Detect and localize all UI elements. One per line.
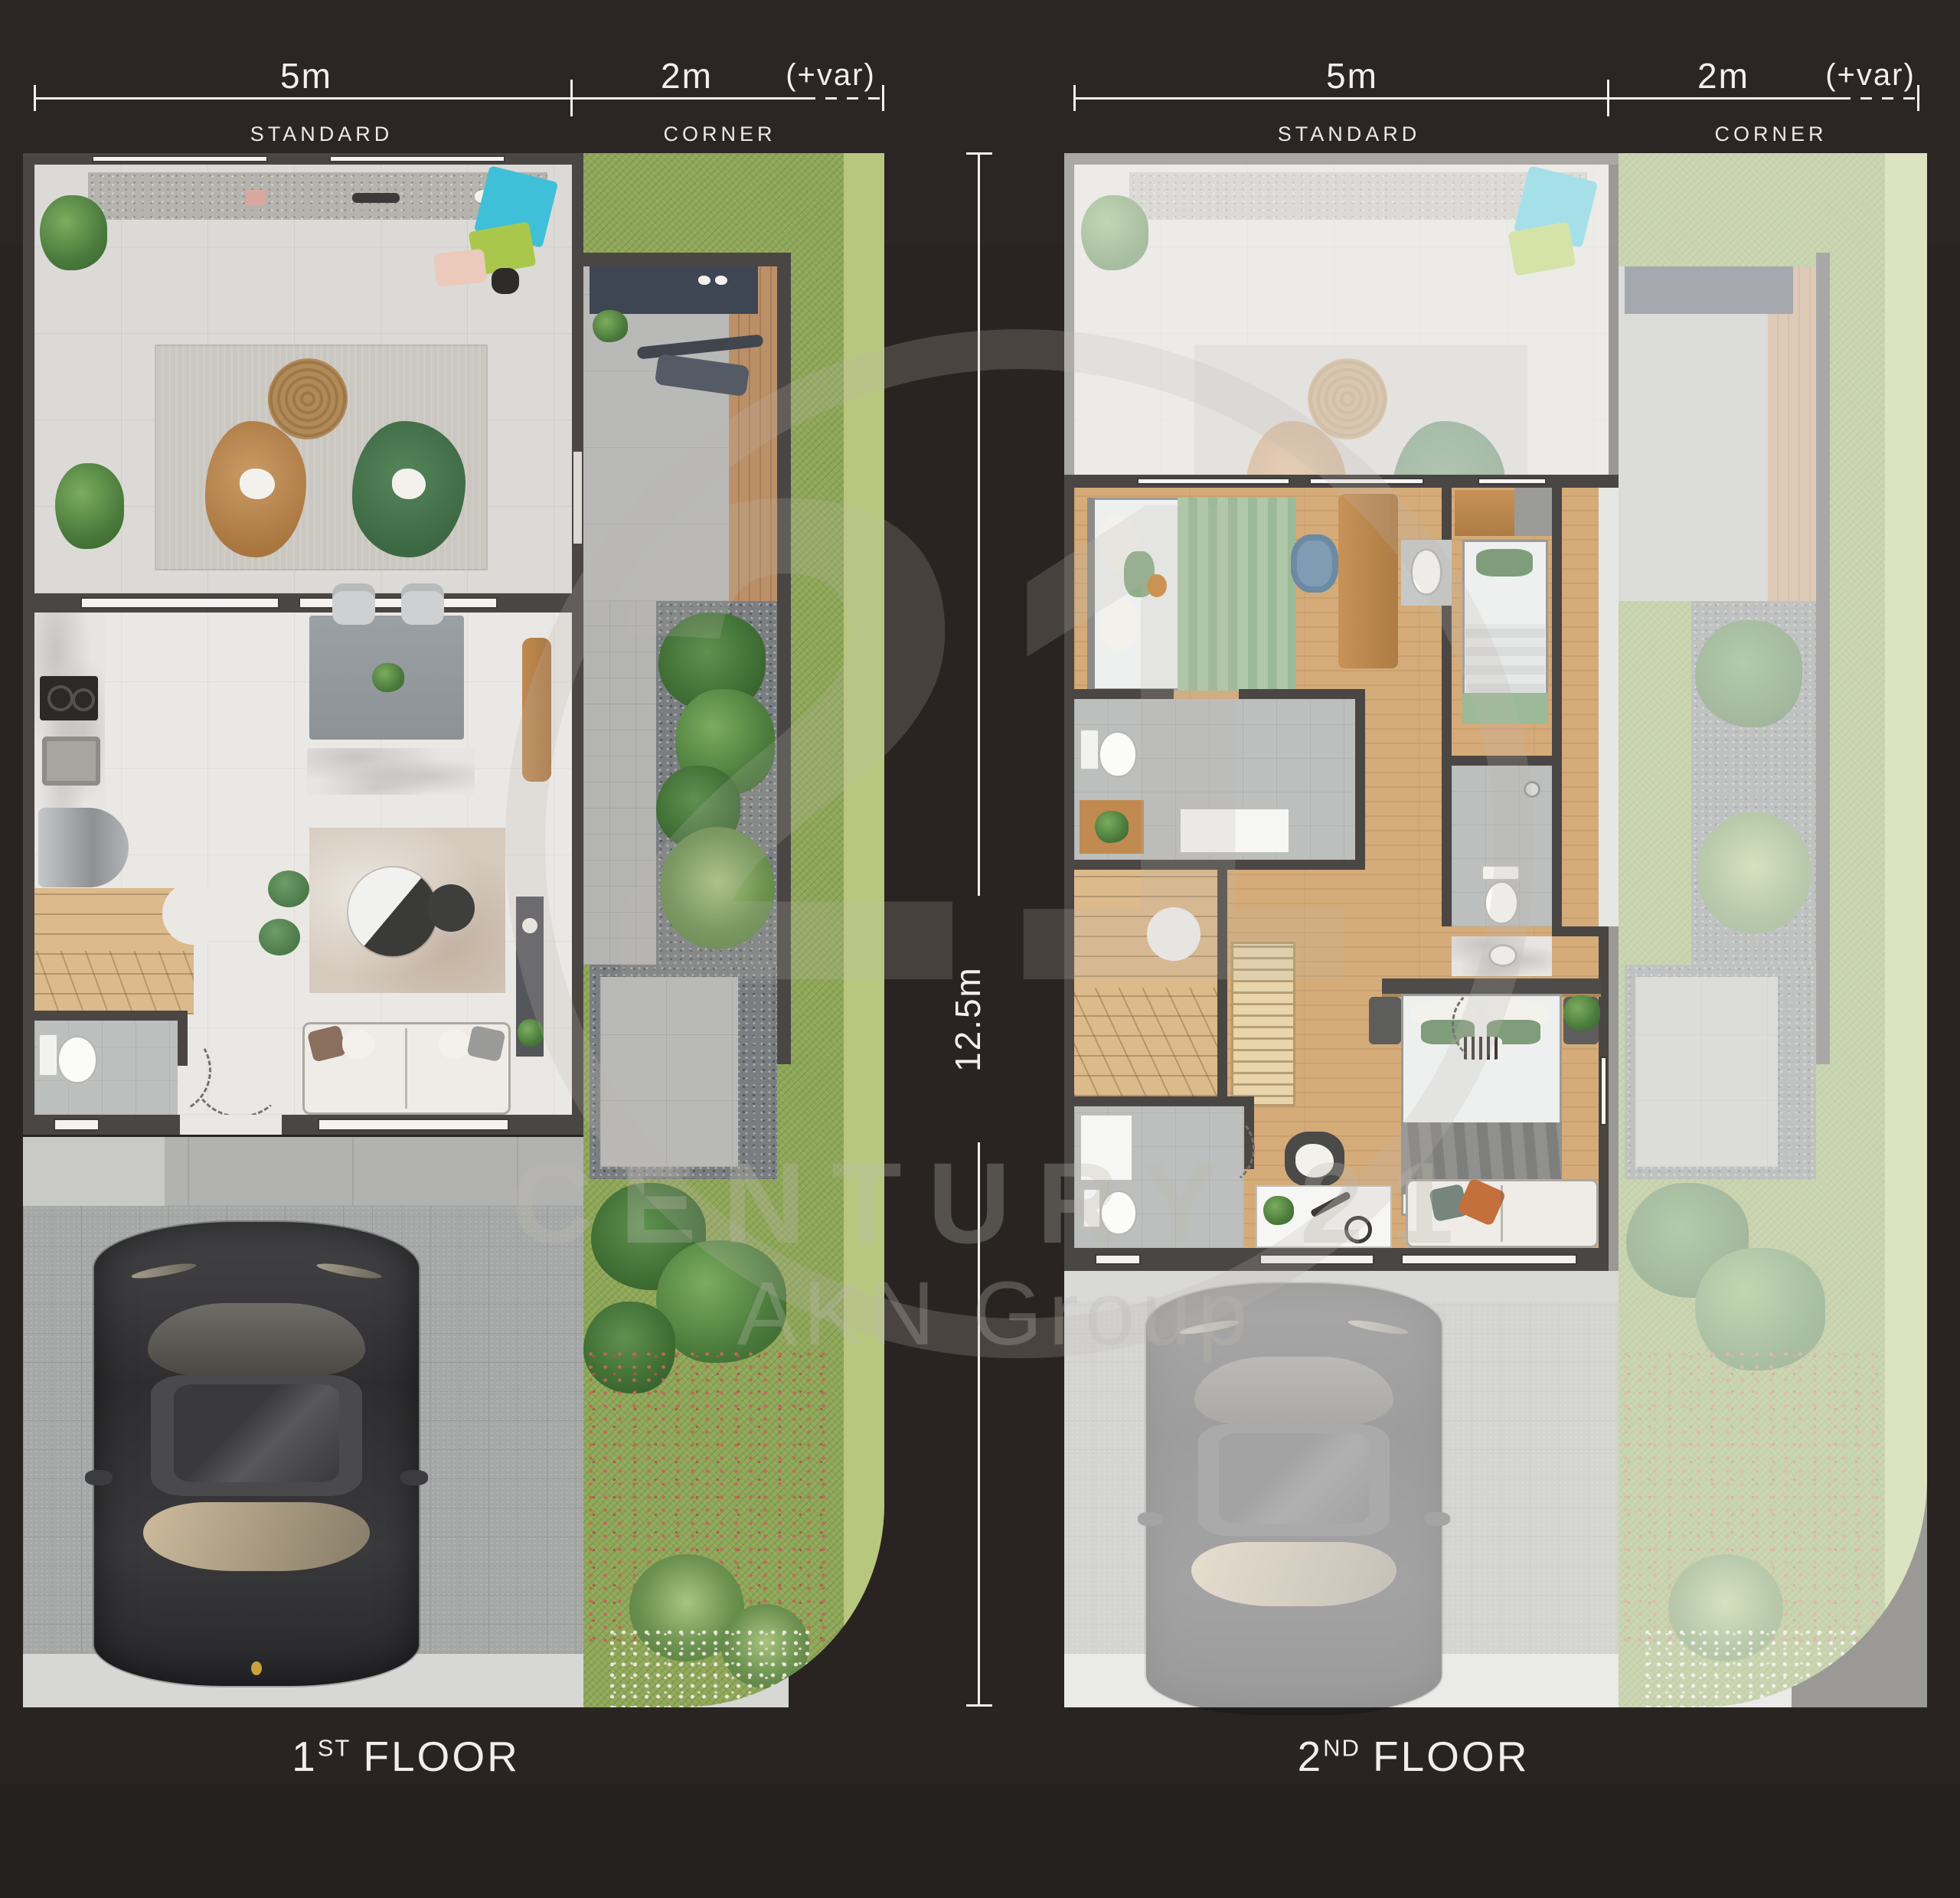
- right-dim-corner: 2m: [1647, 55, 1800, 96]
- sliding-door: [80, 597, 279, 609]
- bedroom1-desk: [1338, 494, 1398, 668]
- palm-plant: [660, 827, 775, 949]
- bed-footer-green: [1462, 693, 1548, 724]
- floor-number: 1: [292, 1733, 318, 1780]
- dim-tick: [1073, 85, 1076, 111]
- bean-pillow: [240, 469, 275, 499]
- stairs-wall: [1217, 870, 1227, 1096]
- dim-tick: [882, 85, 884, 111]
- dim-tick: [34, 85, 36, 111]
- toilet: [1484, 880, 1519, 925]
- entry-threshold: [180, 1115, 282, 1135]
- cushion-dark: [492, 268, 519, 294]
- bed-pillow: [1098, 594, 1142, 652]
- sofa-seam: [405, 1028, 407, 1109]
- potted-plant: [593, 310, 628, 342]
- sofa: [302, 1022, 511, 1115]
- car-rear-window: [143, 1502, 370, 1571]
- 2f-stairs-winder: [1074, 988, 1217, 1096]
- bedroom1-wall: [1074, 689, 1174, 699]
- terrace-side-door: [573, 452, 582, 544]
- shelf-plant: [1095, 811, 1129, 843]
- desk-chair-blue: [1291, 534, 1338, 593]
- floor-ordinal: ND: [1323, 1735, 1361, 1762]
- toilet: [57, 1035, 98, 1084]
- vertical-dimension-label: 12.5m: [947, 902, 1011, 1136]
- office-chair-seat: [1295, 1144, 1334, 1178]
- bathroom1-wall: [1355, 699, 1365, 870]
- sofa-pillow: [342, 1030, 374, 1059]
- first-floor-label: 1STFLOOR: [214, 1732, 597, 1781]
- side-wall: [777, 253, 791, 1064]
- window: [329, 155, 505, 162]
- stairs-newel: [1147, 907, 1200, 961]
- gravel-item: [352, 193, 400, 203]
- office-chair: [1285, 1132, 1344, 1187]
- side-table: [427, 884, 475, 932]
- bedroom2-desk: [1455, 490, 1514, 536]
- right-dim-dashes: [1839, 97, 1919, 100]
- nightstand-plant: [1563, 995, 1600, 1031]
- daybed: [1406, 1179, 1599, 1248]
- coffee-table: [348, 867, 437, 956]
- bathroom2-wall: [1074, 1096, 1254, 1106]
- bed-headboard: [1087, 498, 1095, 691]
- window: [318, 1119, 509, 1131]
- console-plant: [518, 1019, 544, 1047]
- floor-ordinal: ST: [318, 1735, 351, 1762]
- cushion-pink: [433, 249, 487, 288]
- bottom-wall: [23, 1115, 180, 1135]
- car: [88, 1217, 425, 1692]
- burner: [72, 688, 95, 711]
- teddy: [1147, 574, 1167, 597]
- sofa-pillow-brown: [307, 1024, 347, 1062]
- walkway-slab: [600, 977, 738, 1167]
- vdim-line-bottom: [978, 1142, 980, 1706]
- desk-laptop: [1310, 1191, 1351, 1217]
- side-yard: [583, 153, 884, 1707]
- dim-tick: [570, 80, 573, 116]
- second-floor-label: 2NDFLOOR: [1222, 1732, 1605, 1781]
- car-windshield: [148, 1303, 365, 1377]
- second-floor-plan: [1064, 153, 1927, 1707]
- bedroom1-wall: [1239, 689, 1365, 699]
- sofa-pillow: [439, 1030, 471, 1059]
- floorplan-sheet: 5m 2m (+var) STANDARD CORNER 5m 2m (+var…: [0, 0, 1960, 1898]
- left-standard-label: STANDARD: [168, 123, 475, 146]
- tv-console: [516, 897, 544, 1057]
- dining-table: [522, 638, 551, 782]
- terrace-plant: [55, 463, 124, 549]
- stairs-landing: [162, 882, 225, 945]
- bathroom-wall: [34, 1011, 188, 1021]
- master-vanity: [1452, 936, 1552, 976]
- bedroom2-closet: [1514, 488, 1552, 536]
- left-wall: [23, 153, 34, 1135]
- flower-field-white: [606, 1627, 813, 1707]
- cooktop: [40, 676, 98, 720]
- window: [1095, 1254, 1141, 1265]
- window: [92, 155, 268, 162]
- sliding-door: [299, 597, 498, 609]
- ghost-overlay-bottom: [1064, 1271, 1927, 1707]
- window: [1309, 478, 1424, 485]
- desk-headphones: [1344, 1216, 1372, 1243]
- bean-pillow: [392, 469, 426, 499]
- window: [1600, 1057, 1607, 1125]
- right-standard-label: STANDARD: [1196, 123, 1502, 146]
- pouf: [268, 871, 309, 907]
- window: [1137, 478, 1290, 485]
- vdim-line-top: [978, 153, 980, 896]
- bathroom1-shelf: [1080, 800, 1144, 854]
- bedroom1-bed: [1087, 498, 1295, 691]
- terrace-plant: [40, 195, 107, 270]
- left-dim-line: [34, 97, 804, 100]
- island-bench: [307, 748, 475, 795]
- pouf: [259, 919, 300, 956]
- tv: [522, 918, 537, 933]
- dim-tick: [1607, 80, 1609, 116]
- left-dim-var: (+var): [754, 58, 907, 93]
- shoes: [715, 276, 727, 285]
- right-dim-line: [1074, 97, 1839, 100]
- toilet-tank: [38, 1034, 58, 1076]
- car-badge: [251, 1661, 262, 1675]
- kitchen-island: [309, 616, 464, 740]
- corner-top-wall: [583, 253, 791, 266]
- right-corner-label: CORNER: [1694, 123, 1847, 146]
- ghost-overlay-top: [1064, 153, 1927, 475]
- window: [1478, 478, 1547, 485]
- wardrobe: [1231, 942, 1295, 1106]
- car-mirror: [85, 1470, 113, 1485]
- outdoor-cabinet: [590, 266, 758, 314]
- desk-plant: [1263, 1196, 1294, 1225]
- sofa-pillow-gray: [466, 1025, 505, 1062]
- office-desk: [1256, 1185, 1392, 1248]
- toilet: [1098, 730, 1138, 778]
- first-floor-plan: [23, 153, 884, 1707]
- toilet-tank: [1080, 729, 1099, 770]
- toilet: [1099, 1190, 1138, 1236]
- ghost-overlay-right: [1562, 475, 1927, 1271]
- green-boundary-strip: [844, 153, 884, 1707]
- right-dim-standard: 5m: [1199, 55, 1505, 96]
- floor-word: FLOOR: [363, 1733, 519, 1780]
- bedroom2-bed: [1462, 540, 1548, 724]
- dim-tick: [1917, 85, 1919, 111]
- stairs-winder: [34, 951, 194, 1014]
- bathroom2-vanity: [1080, 1114, 1133, 1181]
- bar-chair: [401, 583, 444, 625]
- floor-word: FLOOR: [1373, 1733, 1529, 1780]
- burner: [47, 685, 73, 711]
- gravel-item: [245, 190, 266, 205]
- right-wall: [572, 153, 583, 1135]
- bar-chair: [332, 583, 375, 625]
- left-dim-dashes: [804, 97, 884, 100]
- bed-pillow-green: [1476, 549, 1533, 577]
- kitchen-sink: [42, 737, 100, 786]
- daybed-seam: [1501, 1185, 1503, 1242]
- right-dim-var: (+var): [1794, 58, 1947, 93]
- left-dim-corner: 2m: [610, 55, 763, 96]
- bedroom2-wall: [1452, 756, 1552, 766]
- car-mirror: [400, 1470, 428, 1485]
- bathroom1-vanity: [1179, 808, 1290, 854]
- island-plant: [372, 663, 404, 692]
- window: [54, 1119, 100, 1131]
- left-dim-standard: 5m: [153, 55, 459, 96]
- shoes: [698, 276, 710, 285]
- nightstand: [1369, 997, 1401, 1044]
- 2f-left-wall: [1064, 475, 1074, 1271]
- window: [1401, 1254, 1577, 1265]
- shower-head: [1524, 781, 1540, 798]
- bathroom1-wall: [1074, 860, 1365, 870]
- hall-wc-toilet: [1410, 548, 1442, 596]
- toilet-tank: [1481, 865, 1520, 880]
- wood-deck: [729, 266, 777, 601]
- floor-number: 2: [1298, 1733, 1324, 1780]
- toilet-tank: [1083, 1188, 1101, 1228]
- bed-blanket-green: [1178, 498, 1295, 691]
- window: [1259, 1254, 1374, 1265]
- vanity-sink: [1488, 944, 1517, 967]
- left-corner-label: CORNER: [643, 123, 796, 146]
- vdim-tick: [966, 1704, 992, 1707]
- garden-bush: [656, 1240, 786, 1363]
- entry-path: [23, 1137, 165, 1206]
- car-sunroof: [174, 1384, 339, 1482]
- paver-patch: [583, 601, 656, 965]
- daybed-pillow-orange: [1456, 1178, 1506, 1227]
- fridge: [38, 808, 129, 887]
- 2f-right-wall-upper: [1552, 475, 1562, 936]
